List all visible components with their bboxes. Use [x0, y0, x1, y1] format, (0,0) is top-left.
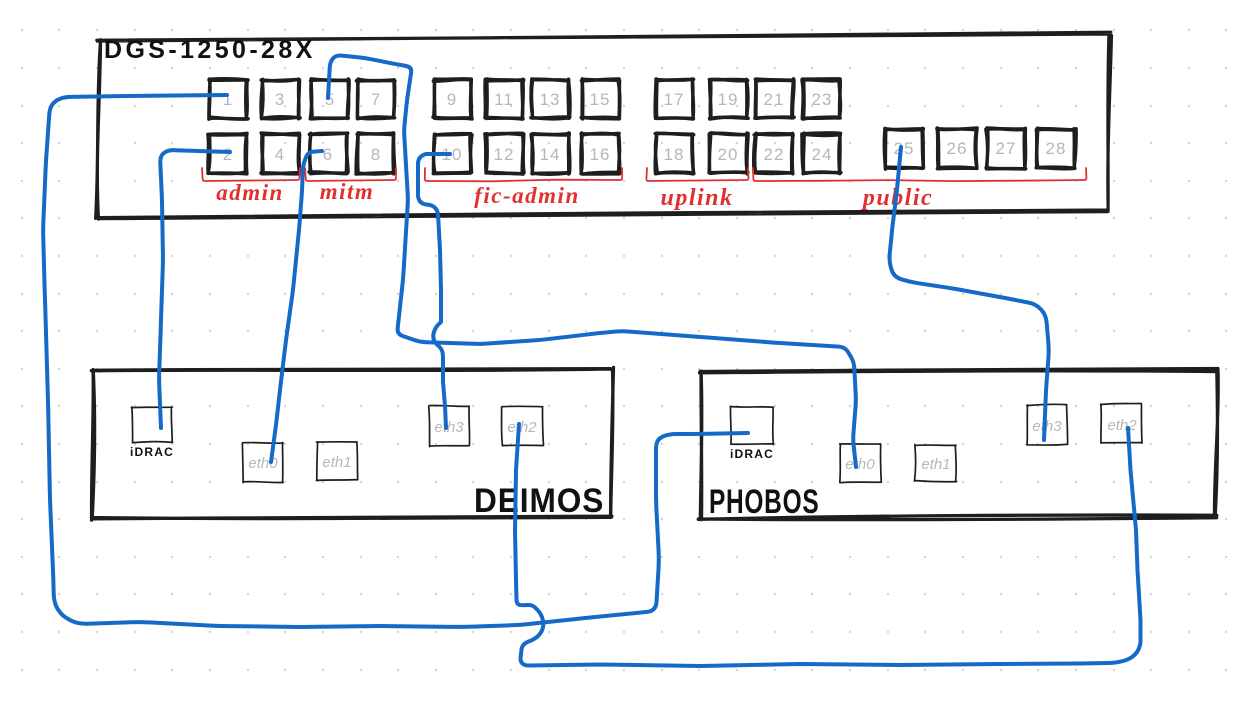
svg-text:uplink: uplink [660, 185, 733, 211]
svg-text:14: 14 [540, 145, 561, 164]
svg-text:iDRAC: iDRAC [730, 447, 774, 461]
svg-text:15: 15 [590, 90, 611, 109]
svg-text:mitm: mitm [320, 179, 375, 204]
svg-text:8: 8 [371, 145, 381, 164]
svg-text:7: 7 [371, 90, 381, 109]
svg-text:1: 1 [223, 90, 233, 109]
svg-text:13: 13 [540, 90, 561, 109]
svg-text:12: 12 [494, 145, 515, 164]
svg-text:27: 27 [996, 139, 1017, 158]
svg-text:22: 22 [764, 145, 785, 164]
svg-text:DGS-1250-28X: DGS-1250-28X [104, 36, 316, 64]
svg-text:eth1: eth1 [921, 456, 950, 473]
svg-text:eth3: eth3 [434, 419, 464, 436]
svg-text:21: 21 [764, 90, 785, 109]
svg-text:18: 18 [664, 145, 685, 164]
svg-text:23: 23 [812, 90, 833, 109]
svg-text:iDRAC: iDRAC [130, 445, 174, 459]
svg-text:24: 24 [812, 145, 833, 164]
svg-text:26: 26 [947, 139, 968, 158]
svg-text:eth2: eth2 [507, 419, 537, 436]
svg-text:admin: admin [216, 180, 284, 205]
svg-text:28: 28 [1046, 139, 1067, 158]
svg-text:3: 3 [275, 90, 285, 109]
svg-text:16: 16 [590, 145, 611, 164]
svg-text:4: 4 [275, 145, 285, 164]
svg-text:6: 6 [323, 145, 333, 164]
svg-text:DEIMOS: DEIMOS [474, 481, 604, 519]
svg-text:20: 20 [718, 145, 739, 164]
svg-text:eth2: eth2 [1107, 417, 1137, 434]
svg-text:eth0: eth0 [845, 456, 875, 473]
svg-text:25: 25 [894, 139, 915, 158]
svg-text:PHOBOS: PHOBOS [709, 483, 819, 521]
svg-text:eth0: eth0 [248, 455, 278, 472]
svg-text:9: 9 [447, 90, 457, 109]
svg-text:2: 2 [223, 145, 233, 164]
svg-text:eth1: eth1 [322, 454, 351, 471]
svg-text:eth3: eth3 [1032, 418, 1062, 435]
svg-text:11: 11 [494, 90, 514, 109]
svg-text:fic-admin: fic-admin [474, 183, 580, 208]
svg-text:17: 17 [664, 90, 685, 109]
svg-text:19: 19 [718, 90, 739, 109]
